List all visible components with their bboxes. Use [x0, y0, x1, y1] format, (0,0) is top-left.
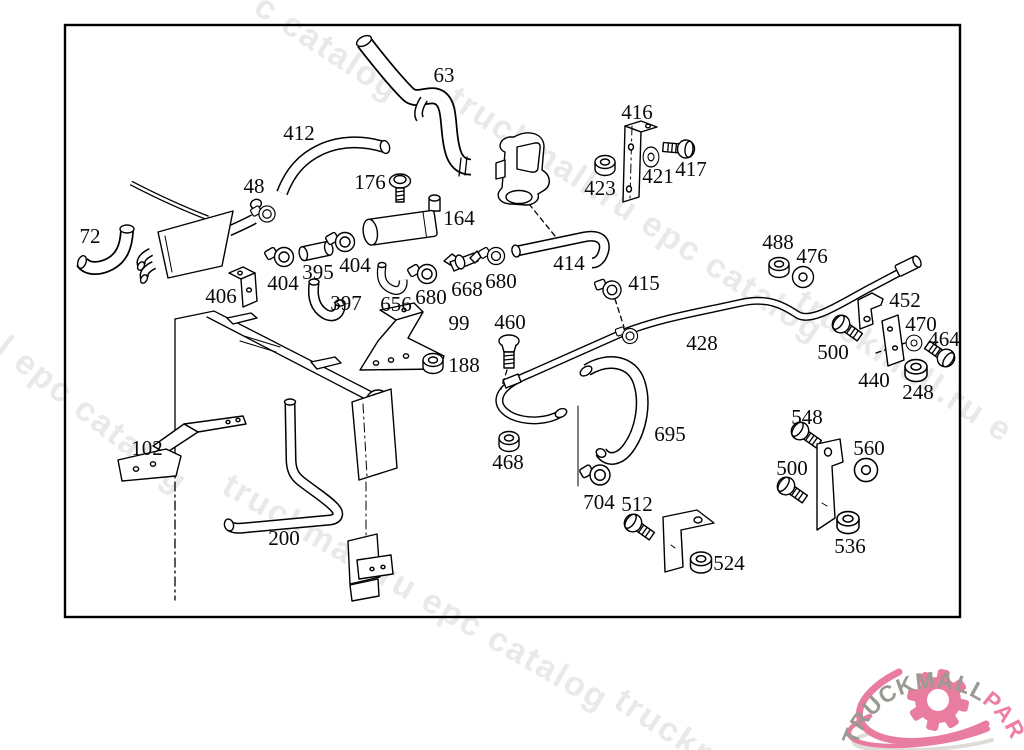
part-label-423: 423 [584, 176, 616, 200]
part-label-695: 695 [654, 422, 686, 446]
part-label-476: 476 [796, 244, 828, 268]
bolt-176 [390, 174, 411, 202]
part-label-524: 524 [713, 551, 745, 575]
part-label-404: 404 [267, 271, 299, 295]
part-label-48: 48 [244, 174, 265, 198]
watermark-text: truckmall [608, 681, 771, 750]
nut-248 [905, 360, 927, 382]
clamp-415 [592, 277, 624, 327]
nut-536 [837, 512, 859, 534]
part-label-512: 512 [621, 492, 653, 516]
part-label-63: 63 [434, 63, 455, 87]
part-label-412: 412 [283, 121, 315, 145]
bracket-452 [858, 293, 883, 329]
part-label-656: 656 [380, 292, 412, 316]
nut-188 [423, 354, 443, 374]
fitting-668 [444, 251, 481, 271]
part-label-102: 102 [131, 436, 163, 460]
part-label-680: 680 [485, 269, 517, 293]
part-label-548: 548 [791, 405, 823, 429]
part-label-488: 488 [762, 230, 794, 254]
part-label-72: 72 [80, 224, 101, 248]
washer-476 [793, 267, 814, 288]
elbow-656 [378, 263, 403, 291]
part-label-417: 417 [675, 157, 707, 181]
part-label-440: 440 [858, 368, 890, 392]
part-label-404: 404 [339, 253, 371, 277]
part-label-397: 397 [330, 291, 362, 315]
clamp-680-right [478, 247, 505, 265]
core-pipe [131, 183, 208, 218]
part-label-560: 560 [853, 436, 885, 460]
part-label-248: 248 [902, 380, 934, 404]
part-label-414: 414 [553, 251, 585, 275]
nut-488 [769, 258, 789, 278]
parts-diagram: c catalogtruckmall.ru epc catalogl epc c… [0, 0, 1024, 750]
part-label-500: 500 [817, 340, 849, 364]
part-label-406: 406 [205, 284, 237, 308]
part-label-188: 188 [448, 353, 480, 377]
part-label-176: 176 [354, 170, 386, 194]
part-label-395: 395 [302, 260, 334, 284]
part-label-421: 421 [642, 164, 674, 188]
part-label-680: 680 [415, 285, 447, 309]
part-label-99: 99 [449, 311, 470, 335]
clamp-404-left [264, 247, 293, 267]
part-label-464: 464 [928, 327, 960, 351]
bolt-417 [662, 138, 695, 159]
clamp-704 [579, 464, 610, 485]
part-label-416: 416 [621, 100, 653, 124]
part-label-536: 536 [834, 534, 866, 558]
nut-524 [691, 552, 712, 573]
clamp-680-left [407, 264, 436, 284]
part-label-164: 164 [443, 206, 475, 230]
nut-468 [499, 432, 519, 452]
nut-423 [595, 156, 615, 176]
part-label-200: 200 [268, 526, 300, 550]
hose-63 [355, 33, 471, 176]
watermark-text: truckmall.ru epc catalog [216, 466, 615, 718]
part-label-415: 415 [628, 271, 660, 295]
part-label-704: 704 [583, 490, 615, 514]
part-label-428: 428 [686, 331, 718, 355]
part-label-468: 468 [492, 450, 524, 474]
washer-470 [906, 335, 922, 351]
part-label-460: 460 [494, 310, 526, 334]
part-label-668: 668 [451, 277, 483, 301]
part-label-500: 500 [776, 456, 808, 480]
part-label-452: 452 [889, 288, 921, 312]
washer-560 [854, 458, 877, 481]
